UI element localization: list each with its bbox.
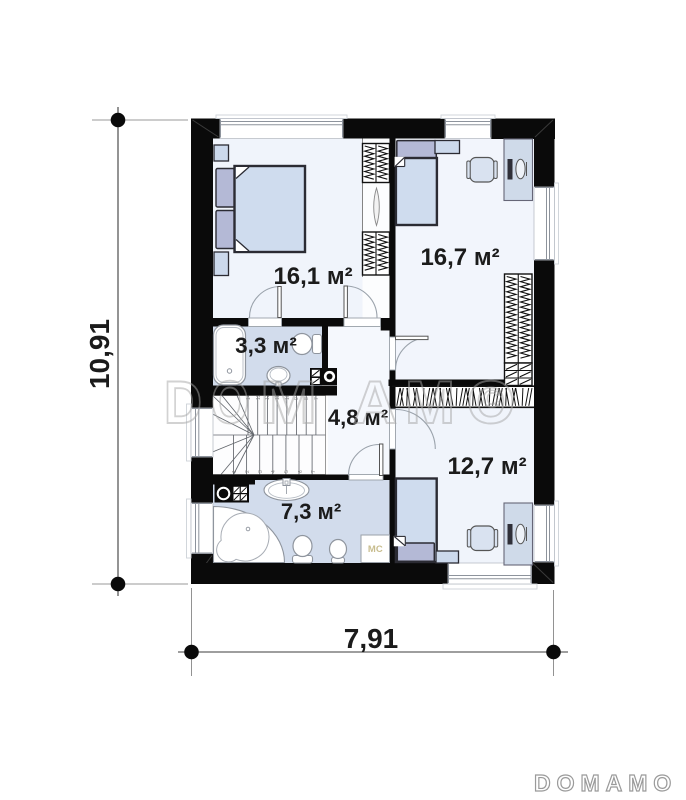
svg-text:16,7 м²: 16,7 м² [420,244,499,271]
svg-text:16,1 м²: 16,1 м² [273,263,352,290]
svg-text:M: M [405,369,455,436]
svg-text:3: 3 [258,470,264,473]
svg-text:A: A [353,369,397,436]
svg-text:O: O [211,369,249,436]
svg-text:10,91: 10,91 [84,319,115,389]
svg-text:1: 1 [232,470,238,473]
svg-text:6: 6 [298,470,304,473]
svg-text:12,7 м²: 12,7 м² [447,453,526,480]
svg-text:D: D [164,369,202,436]
svg-text:4: 4 [271,470,277,473]
svg-text:C: C [483,386,500,413]
svg-text:3,3 м²: 3,3 м² [235,333,297,358]
svg-text:7,3 м²: 7,3 м² [281,499,341,524]
svg-text:7: 7 [311,470,317,473]
svg-text:7,91: 7,91 [344,623,399,654]
svg-text:M: M [260,369,317,436]
svg-text:DOMAMO: DOMAMO [534,770,677,796]
svg-text:МС: МС [368,544,383,555]
svg-text:2: 2 [245,470,251,473]
svg-text:5: 5 [284,470,290,473]
